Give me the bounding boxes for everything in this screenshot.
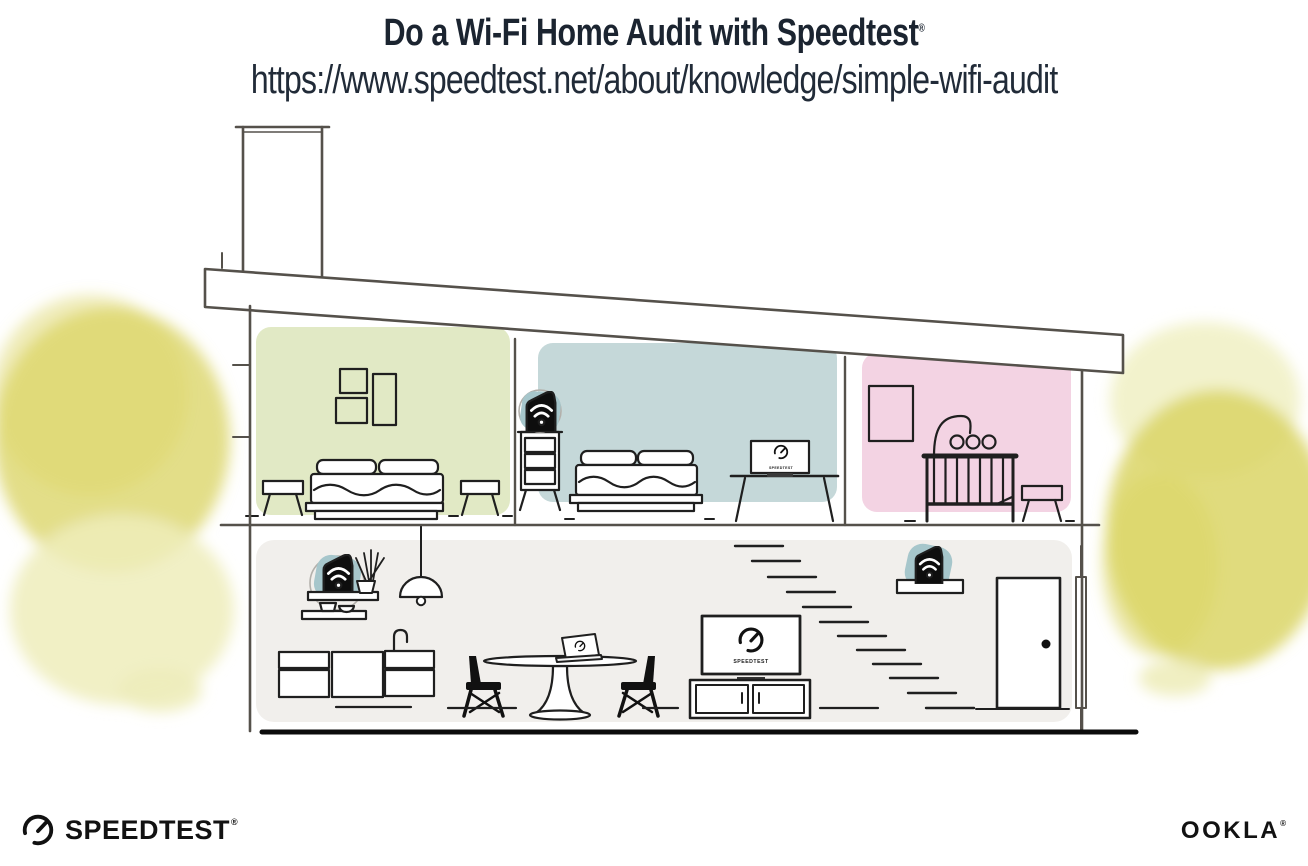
speedtest-logo: SPEEDTEST® (20, 813, 238, 847)
ookla-wordmark: OOKLA (1181, 817, 1280, 844)
page-title: Do a Wi-Fi Home Audit with Speedtest® (0, 12, 1308, 56)
speedtest-registered-mark: ® (231, 817, 238, 827)
doorknob-dot (1042, 640, 1051, 649)
foliage-right (1102, 322, 1308, 696)
header: Do a Wi-Fi Home Audit with Speedtest® ht… (0, 12, 1308, 102)
page-url: https://www.speedtest.net/about/knowledg… (0, 58, 1308, 102)
dresser (518, 432, 562, 510)
title-registered-mark: ® (918, 22, 924, 34)
bedroom-laptop-screen-label: SPEEDTEST (769, 466, 794, 470)
ookla-registered-mark: ® (1280, 819, 1286, 828)
tv-screen-label: SPEEDTEST (733, 659, 769, 665)
chimney (236, 127, 329, 278)
bed-green (306, 460, 443, 519)
page-title-text: Do a Wi-Fi Home Audit with Speedtest (384, 12, 919, 54)
house-illustration: SPEEDTEST (0, 0, 1308, 861)
speedtest-wordmark: SPEEDTEST (65, 815, 230, 845)
ookla-logo: OOKLA® (1181, 817, 1286, 845)
wifi-extender-bedroom (518, 390, 562, 434)
bowl (339, 606, 354, 612)
bed-teal (570, 451, 702, 511)
bedroom-laptop: SPEEDTEST (751, 441, 809, 477)
dining-laptop (556, 634, 602, 662)
speedtest-gauge-icon (20, 813, 56, 847)
tv: SPEEDTEST (702, 616, 800, 681)
nursery-pink-room (862, 353, 1071, 512)
tv-cabinet (690, 680, 810, 718)
left-wall-ticks (233, 365, 250, 437)
cup (320, 603, 336, 611)
foliage-left (0, 295, 234, 712)
